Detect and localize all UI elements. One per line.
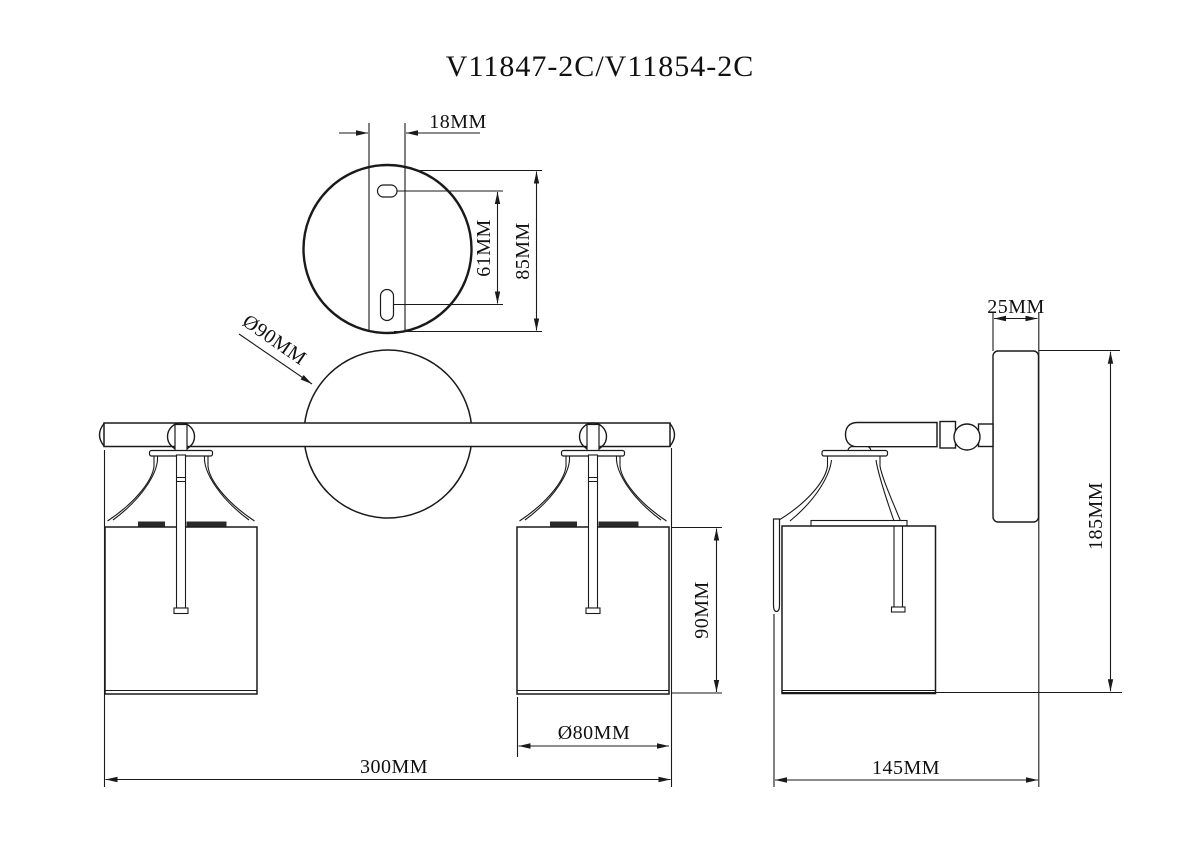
drawing-title: V11847-2C/V11854-2C [446,50,754,83]
keyhole-slot-top [378,185,398,197]
dim-label-145mm: 145MM [872,757,940,779]
technical-drawing: V11847-2C/V11854-2C 18MM 61MM 85MM [0,0,1200,848]
dim-label-dia90mm: Ø90MM [238,310,310,370]
dim-label-300mm: 300MM [360,756,428,778]
lamp-assembly-right [517,423,669,694]
dim-label-90mm: 90MM [691,581,713,639]
mounting-bar [104,423,670,447]
dim-label-dia80mm: Ø80MM [558,722,631,744]
dim-label-85mm: 85MM [512,222,534,280]
cage-hoop-front [774,519,780,612]
socket-plate-side [822,451,888,457]
cage-ring-side [811,521,907,527]
mounting-plate-top-view: 18MM 61MM 85MM [304,111,543,333]
wall-plate-side [993,351,1039,522]
collar-left [940,422,956,449]
lamp-assembly-left [105,423,257,694]
keyhole-slot-bottom [381,290,394,321]
glass-shade-side [782,526,936,694]
collar-right [979,424,994,447]
ball-joint-side [954,424,980,450]
drawing-page: V11847-2C/V11854-2C 18MM 61MM 85MM [0,0,1200,848]
socket-bell-side [778,456,901,521]
front-view: Ø90MM 90MM Ø80MM 300MM [100,310,723,787]
dim-label-18mm: 18MM [429,111,487,133]
arm-side [846,423,938,447]
dim-label-61mm: 61MM [473,219,495,277]
side-view: 25MM 185MM 145MM [774,296,1123,787]
cage-hoop-foot [892,607,906,612]
dim-label-25mm: 25MM [987,296,1045,318]
dim-label-185mm: 185MM [1085,482,1107,550]
